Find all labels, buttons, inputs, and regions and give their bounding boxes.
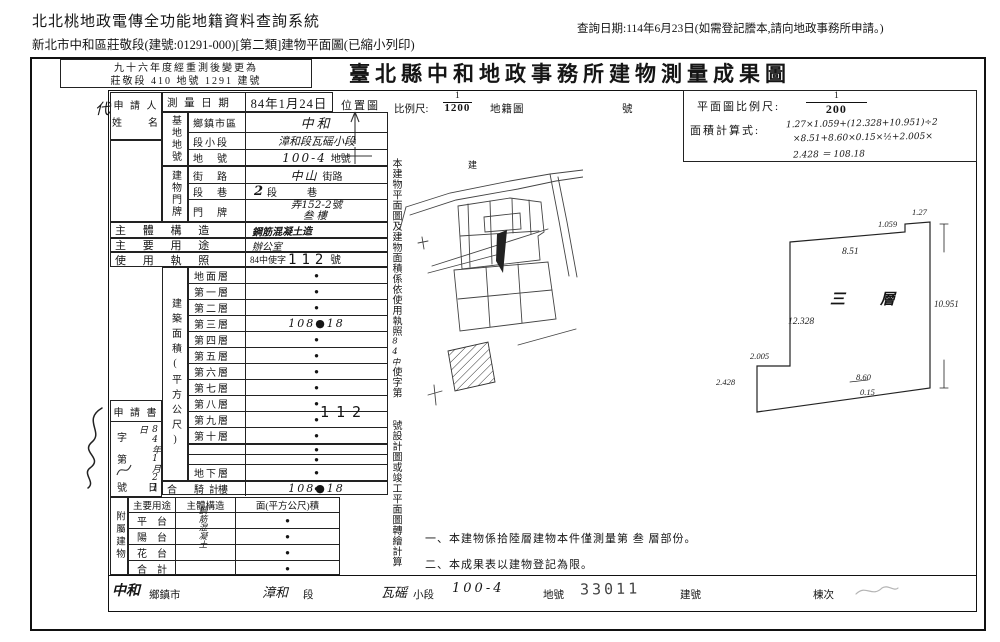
structure-row: 主 體 構 造 鋼筋混凝土造	[110, 222, 388, 238]
survey-date-value: 84年1月24日	[246, 93, 332, 111]
application-char-label: 字	[117, 429, 127, 444]
footer-parcel-hand: 100-4	[452, 581, 504, 596]
area-formula-line3: 2.428 ＝ 108.18	[793, 146, 865, 160]
survey-date-row: 測 量 日 期 84年1月24日	[162, 92, 333, 112]
door-row-number: 門 牌 弄152-2號 叁樓	[189, 200, 387, 222]
door-plate-rows: 街 路 中山 街路 段 巷 2 段 巷 門 牌 弄152-2號 叁樓	[188, 166, 388, 222]
base-row-section: 段小段 漳和段瓦磘小段	[189, 133, 387, 150]
area-formula-label: 面積計算式:	[690, 122, 760, 138]
sketch-building-label: 建	[468, 158, 477, 171]
license-prefix: 84中使字	[250, 253, 286, 266]
plan-scale-denominator: 200	[806, 103, 867, 116]
annex-row-balcony: 陽 台 ●	[129, 529, 339, 545]
scanned-cadastral-document-page: 北北桃地政電傳全功能地籍資料查詢系統 新北市中和區莊敬段(建號:01291-00…	[0, 0, 1000, 642]
footer-town-hand: 中和	[112, 580, 140, 600]
dim-8-51: 8.51	[842, 247, 859, 257]
floor-row: 第四層●	[189, 332, 387, 348]
annex-row-platform: 平 台 ●	[129, 513, 339, 529]
applicant-name-blank-cell	[110, 140, 162, 222]
building-area-total-row: 合 計 108●18	[162, 481, 388, 495]
usage-value: 辦公室	[252, 238, 282, 253]
footer-section-label: 段	[303, 587, 314, 602]
footer-subsection-hand: 瓦磘	[381, 582, 407, 601]
cadastre-sheet-label: 號	[622, 101, 633, 116]
usage-row: 主 要 用 途 辦公室	[110, 238, 388, 252]
dim-10-951: 10.951	[934, 299, 959, 309]
footer-faint-scribble	[852, 580, 900, 602]
note-1: 一、本建物係拾陸層建物本件僅測量第 叁 層部份。	[425, 530, 697, 546]
annex-group-label: 附屬建物	[110, 497, 128, 575]
remeasure-stamp-box: 九十六年度經重測後變更為 莊敬段 410 地號 1291 建號	[60, 59, 312, 88]
door-row-lane: 段 巷 2 段 巷	[189, 184, 387, 200]
floor-row: ●	[189, 445, 387, 455]
floor-row: 第六層●	[189, 364, 387, 380]
floor-plan-floor-label: 三 層	[830, 288, 905, 309]
applicant-label-line2: 姓 名	[111, 115, 161, 132]
floor-row: 第一層●	[189, 284, 387, 300]
agent-mark-handwriting: 代	[95, 98, 110, 119]
application-box-label: 申 請 書	[111, 401, 161, 422]
query-date: 查詢日期:114年6月23日(如需登記謄本,請向地政事務所申請。)	[577, 20, 884, 36]
dim-2-428: 2.428	[716, 377, 735, 387]
structure-value: 鋼筋混凝土造	[252, 222, 312, 238]
base-row-parcel: 地 號 100-4 地號	[189, 150, 387, 165]
system-title: 北北桃地政電傳全功能地籍資料查詢系統	[32, 10, 320, 31]
location-scale-label: 比例尺:	[394, 101, 428, 116]
document-subtitle: 新北市中和區莊敬段(建號:01291-000)[第二類]建物平面圖(已縮小列印)	[32, 34, 415, 53]
footer-stamp-number: 33011	[580, 579, 640, 598]
remeasure-line2: 莊敬段 410 地號 1291 建號	[61, 75, 311, 88]
dim-8-60: 8.60	[856, 372, 871, 382]
floor-row: 第二層●	[189, 300, 387, 316]
floor-row: 第十層●	[189, 428, 387, 444]
floor-row-third: 第三層108●18	[189, 316, 387, 332]
plan-scale-label: 平面圖比例尺:	[697, 98, 780, 114]
door-plate-group-label: 建物門牌	[162, 166, 188, 222]
applicant-name-cell: 申 請 人 姓 名	[110, 92, 162, 140]
building-area-floor-table: 地面層● 第一層● 第二層● 第三層108●18 第四層● 第五層● 第六層● …	[188, 267, 388, 481]
annex-structure-hand-value: 鋼筋混凝土	[196, 506, 208, 572]
dim-1-27: 1.27	[912, 207, 927, 217]
application-number-box: 申 請 書 字 第 號 日 84年1月21日	[110, 400, 162, 497]
annex-row-total: 合 計 ●	[129, 561, 339, 576]
door-floor-value: 叁樓	[303, 211, 330, 222]
base-row-township: 鄉鎮市區 中和	[189, 113, 387, 133]
footer-subsection-label: 小段	[413, 587, 434, 602]
door-row-street: 街 路 中山 街路	[189, 167, 387, 184]
handwritten-scribble	[113, 459, 135, 479]
license-row: 使 用 執 照 84中使字 112 號	[110, 252, 388, 267]
license-suffix: 號	[330, 252, 341, 267]
base-parcel-group-label: 基地地號	[162, 112, 188, 166]
floor-row: ●	[189, 455, 387, 465]
floor-row: 地面層●	[189, 268, 387, 284]
dim-12-328: 12.328	[788, 317, 814, 327]
floor-row: 第五層●	[189, 348, 387, 364]
survey-date-label: 測 量 日 期	[163, 93, 246, 111]
application-hand-date: 84年1月21日	[136, 425, 162, 493]
annex-table: 主要用途 主體構造 面(平方公尺)積 平 台 ● 陽 台 ● 花 台 ● 合 計…	[128, 497, 340, 575]
location-scale-denominator: 1200	[443, 103, 472, 115]
footer-parcel-label: 地號	[543, 587, 564, 602]
base-parcel-rows: 鄉鎮市區 中和 段小段 漳和段瓦磘小段 地 號 100-4 地號	[188, 112, 388, 166]
location-scale-fraction: 1 1200	[443, 92, 472, 115]
dim-1-059: 1.059	[878, 219, 897, 229]
footer-building-no-label: 建號	[680, 587, 701, 602]
applicant-label-line1: 申 請 人	[111, 98, 161, 115]
footer-divider	[108, 575, 977, 576]
annex-header-row: 主要用途 主體構造 面(平方公尺)積	[129, 498, 339, 513]
dim-2-005: 2.005	[750, 351, 769, 361]
annex-row-planter: 花 台 ●	[129, 545, 339, 561]
license-number: 112	[288, 252, 328, 268]
cadastre-map-label: 地籍圖	[490, 101, 525, 116]
building-area-group-label: 建築面積(平方公尺)	[162, 267, 188, 481]
floor-row: 地下層●	[189, 465, 387, 481]
note-2: 二、本成果表以建物登記為限。	[425, 556, 593, 572]
floor-row: 第七層●	[189, 380, 387, 396]
remeasure-line1: 九十六年度經重測後變更為	[61, 62, 311, 75]
document-title: 臺北縣中和地政事務所建物測量成果圖	[320, 58, 820, 88]
footer-town-label: 鄉鎮市	[149, 587, 181, 602]
application-number-label: 號	[117, 479, 127, 494]
side-note-license-number: 112	[320, 403, 368, 421]
dim-0-15: 0.15	[860, 387, 875, 397]
footer-unit-label: 棟次	[813, 587, 834, 602]
plan-scale-fraction: 1 200	[806, 92, 867, 116]
hatched-parcel	[448, 342, 495, 391]
footer-section-hand: 漳和	[262, 582, 288, 601]
building-area-total-value: 108●18	[246, 482, 387, 494]
handwritten-signature-scribble	[74, 402, 110, 492]
location-sketch-map	[398, 143, 583, 413]
